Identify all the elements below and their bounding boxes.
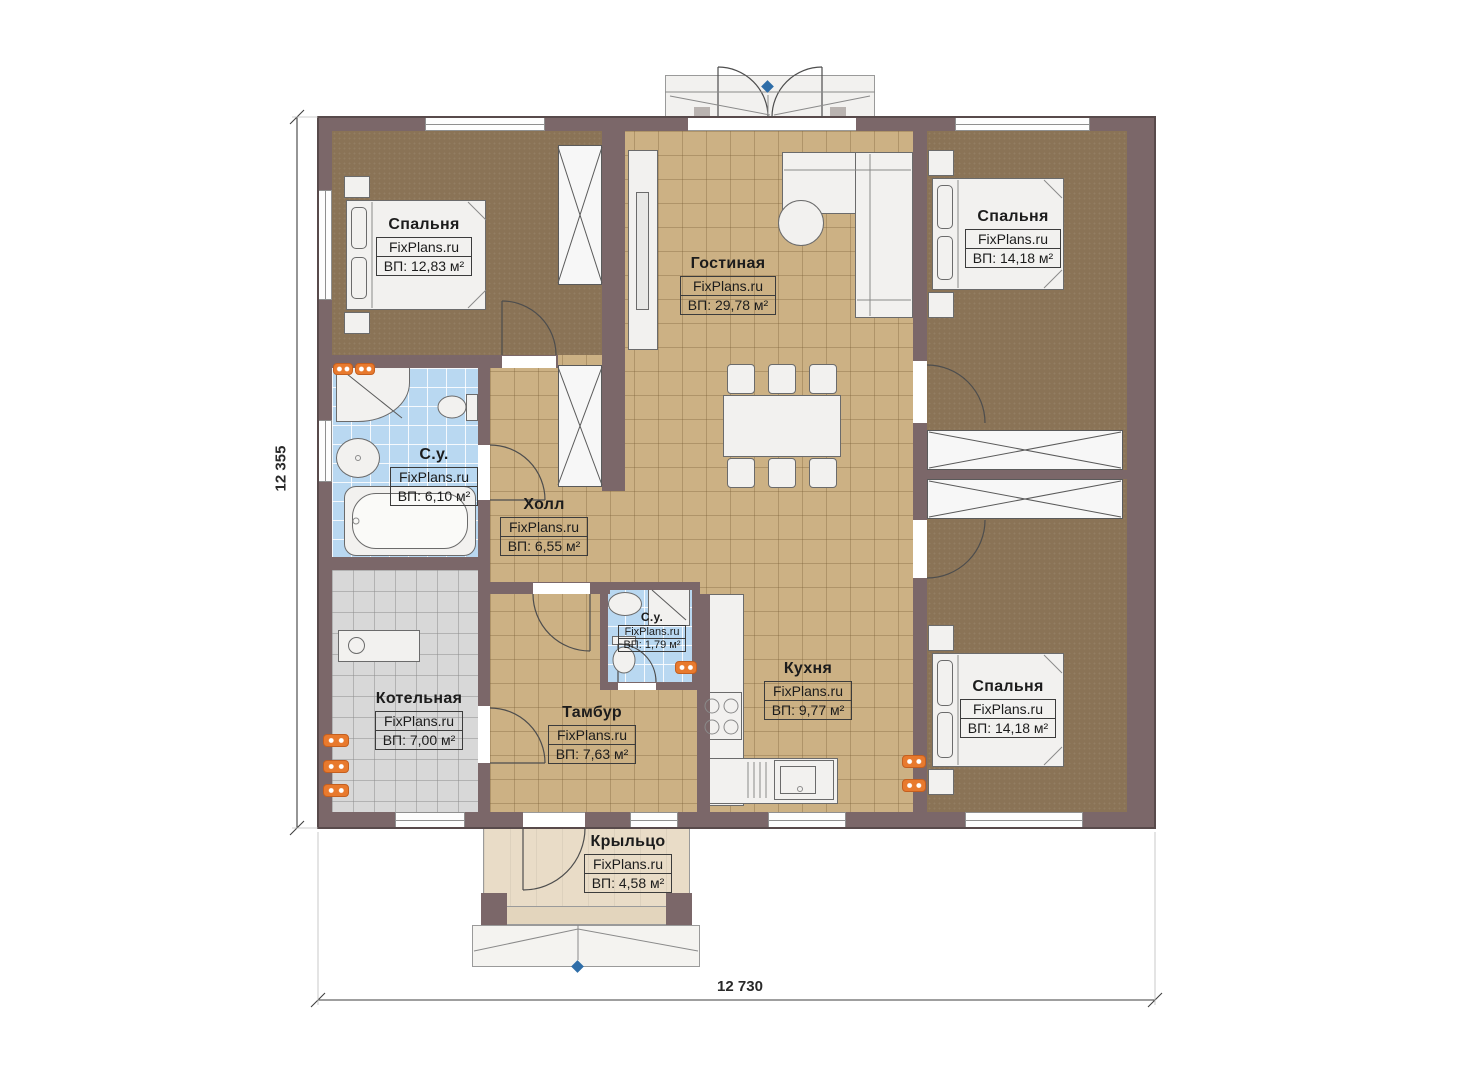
nightstand (928, 150, 954, 176)
room-area: ВП: 7,63 м² (549, 745, 636, 763)
door-opening (502, 356, 556, 368)
room-area: ВП: 9,77 м² (765, 701, 852, 719)
radiator-icon (902, 779, 926, 792)
watermark: FixPlans.ru (376, 712, 463, 731)
room-info-box: FixPlans.ru ВП: 9,77 м² (764, 681, 853, 720)
floor-plan-canvas: Спальня FixPlans.ru ВП: 12,83 м² Гостина… (0, 0, 1474, 1080)
chair (727, 364, 755, 394)
room-info-box: FixPlans.ru ВП: 7,63 м² (548, 725, 637, 764)
room-label-porch: Крыльцо FixPlans.ru ВП: 4,58 м² (563, 833, 693, 893)
wall-interior (913, 131, 927, 812)
radiator-icon (323, 734, 349, 747)
room-name: Спальня (972, 678, 1043, 696)
window (965, 812, 1083, 828)
toilet-tank (466, 394, 478, 421)
room-info-box: FixPlans.ru ВП: 29,78 м² (680, 276, 776, 315)
radiator-icon (675, 661, 697, 674)
dimension-left: 12 355 (273, 434, 290, 504)
nightstand (344, 312, 370, 334)
room-info-box: FixPlans.ru ВП: 6,55 м² (500, 517, 589, 556)
room-label-kitchen: Кухня FixPlans.ru ВП: 9,77 м² (743, 660, 873, 720)
watermark: FixPlans.ru (966, 230, 1060, 249)
window (630, 812, 678, 828)
room-label-living: Гостиная FixPlans.ru ВП: 29,78 м² (663, 255, 793, 315)
room-area: ВП: 14,18 м² (961, 719, 1055, 737)
porch-column (481, 893, 507, 925)
room-info-box: FixPlans.ru ВП: 7,00 м² (375, 711, 464, 750)
chair (768, 458, 796, 488)
radiator-icon (355, 363, 375, 375)
room-name: С.у. (419, 446, 448, 464)
room-label-bedroom-top-right: Спальня FixPlans.ru ВП: 14,18 м² (948, 208, 1078, 268)
entry-door-opening (523, 812, 585, 828)
room-area: ВП: 14,18 м² (966, 249, 1060, 267)
door-opening (533, 583, 590, 594)
watermark: FixPlans.ru (765, 682, 852, 701)
room-info-box: FixPlans.ru ВП: 14,18 м² (960, 699, 1056, 738)
room-info-box: FixPlans.ru ВП: 4,58 м² (584, 854, 673, 893)
room-name: Тамбур (562, 704, 622, 722)
room-info-box: FixPlans.ru ВП: 1,79 м² (618, 625, 685, 652)
wall-interior (332, 557, 478, 570)
room-area: ВП: 7,00 м² (376, 731, 463, 749)
chair (768, 364, 796, 394)
porch-steps (472, 925, 700, 967)
wall-interior (927, 470, 1127, 479)
room-name: Холл (523, 496, 564, 514)
porch-step-band (483, 906, 690, 925)
radiator-icon (333, 363, 353, 375)
dining-table (723, 395, 841, 457)
coffee-table (778, 200, 824, 246)
room-label-bedroom-bottom-right: Спальня FixPlans.ru ВП: 14,18 м² (943, 678, 1073, 738)
window (318, 190, 332, 300)
room-name: Котельная (376, 690, 462, 708)
room-area: ВП: 1,79 м² (619, 639, 684, 651)
room-info-box: FixPlans.ru ВП: 12,83 м² (376, 237, 472, 276)
terrace-bracket (830, 107, 846, 116)
room-name: Спальня (977, 208, 1048, 226)
room-label-vestibule: Тамбур FixPlans.ru ВП: 7,63 м² (527, 704, 657, 764)
nightstand (928, 769, 954, 795)
room-label-hall: Холл FixPlans.ru ВП: 6,55 м² (479, 496, 609, 556)
watermark: FixPlans.ru (619, 626, 684, 639)
nightstand (928, 292, 954, 318)
room-name: С.у. (641, 610, 663, 624)
room-label-bedroom-top-left: Спальня FixPlans.ru ВП: 12,83 м² (359, 216, 489, 276)
wardrobe (558, 145, 602, 285)
wall-right (1127, 117, 1155, 828)
french-door-opening (688, 117, 856, 131)
room-name: Кухня (784, 660, 832, 678)
nightstand (928, 625, 954, 651)
wall-interior (602, 131, 625, 491)
room-name: Гостиная (691, 255, 766, 273)
chair (809, 458, 837, 488)
room-name: Спальня (388, 216, 459, 234)
room-label-boiler: Котельная FixPlans.ru ВП: 7,00 м² (354, 690, 484, 750)
watermark: FixPlans.ru (585, 855, 672, 874)
radiator-icon (902, 755, 926, 768)
kitchen-sink-bowl (780, 766, 816, 794)
porch-column (666, 893, 692, 925)
room-area: ВП: 6,55 м² (501, 537, 588, 555)
door-opening (913, 361, 927, 423)
door-opening (618, 683, 656, 690)
window (318, 420, 332, 482)
room-area: ВП: 12,83 м² (377, 257, 471, 275)
room-name: Крыльцо (591, 833, 666, 851)
room-area: ВП: 6,10 м² (391, 487, 478, 505)
tv (636, 192, 649, 310)
watermark: FixPlans.ru (549, 726, 636, 745)
room-area: ВП: 4,58 м² (585, 874, 672, 892)
room-info-box: FixPlans.ru ВП: 14,18 м² (965, 229, 1061, 268)
watermark: FixPlans.ru (501, 518, 588, 537)
nightstand (344, 176, 370, 198)
window (395, 812, 465, 828)
watermark: FixPlans.ru (391, 468, 478, 487)
room-area: ВП: 29,78 м² (681, 296, 775, 314)
radiator-icon (323, 760, 349, 773)
terrace-bracket (694, 107, 710, 116)
window (425, 117, 545, 131)
chair (809, 364, 837, 394)
door-opening (913, 520, 927, 578)
wardrobe (927, 430, 1123, 470)
wardrobe (558, 365, 602, 487)
dimension-bottom: 12 730 (695, 978, 785, 995)
boiler-dial (348, 637, 365, 654)
room-info-box: FixPlans.ru ВП: 6,10 м² (390, 467, 479, 506)
watermark: FixPlans.ru (377, 238, 471, 257)
radiator-icon (323, 784, 349, 797)
wall-wc (600, 582, 700, 590)
watermark: FixPlans.ru (681, 277, 775, 296)
room-label-wc: С.у. FixPlans.ru ВП: 1,79 м² (587, 610, 717, 652)
chair (727, 458, 755, 488)
wardrobe (927, 479, 1123, 519)
watermark: FixPlans.ru (961, 700, 1055, 719)
window (768, 812, 846, 828)
sofa-section (855, 152, 913, 318)
window (955, 117, 1090, 131)
